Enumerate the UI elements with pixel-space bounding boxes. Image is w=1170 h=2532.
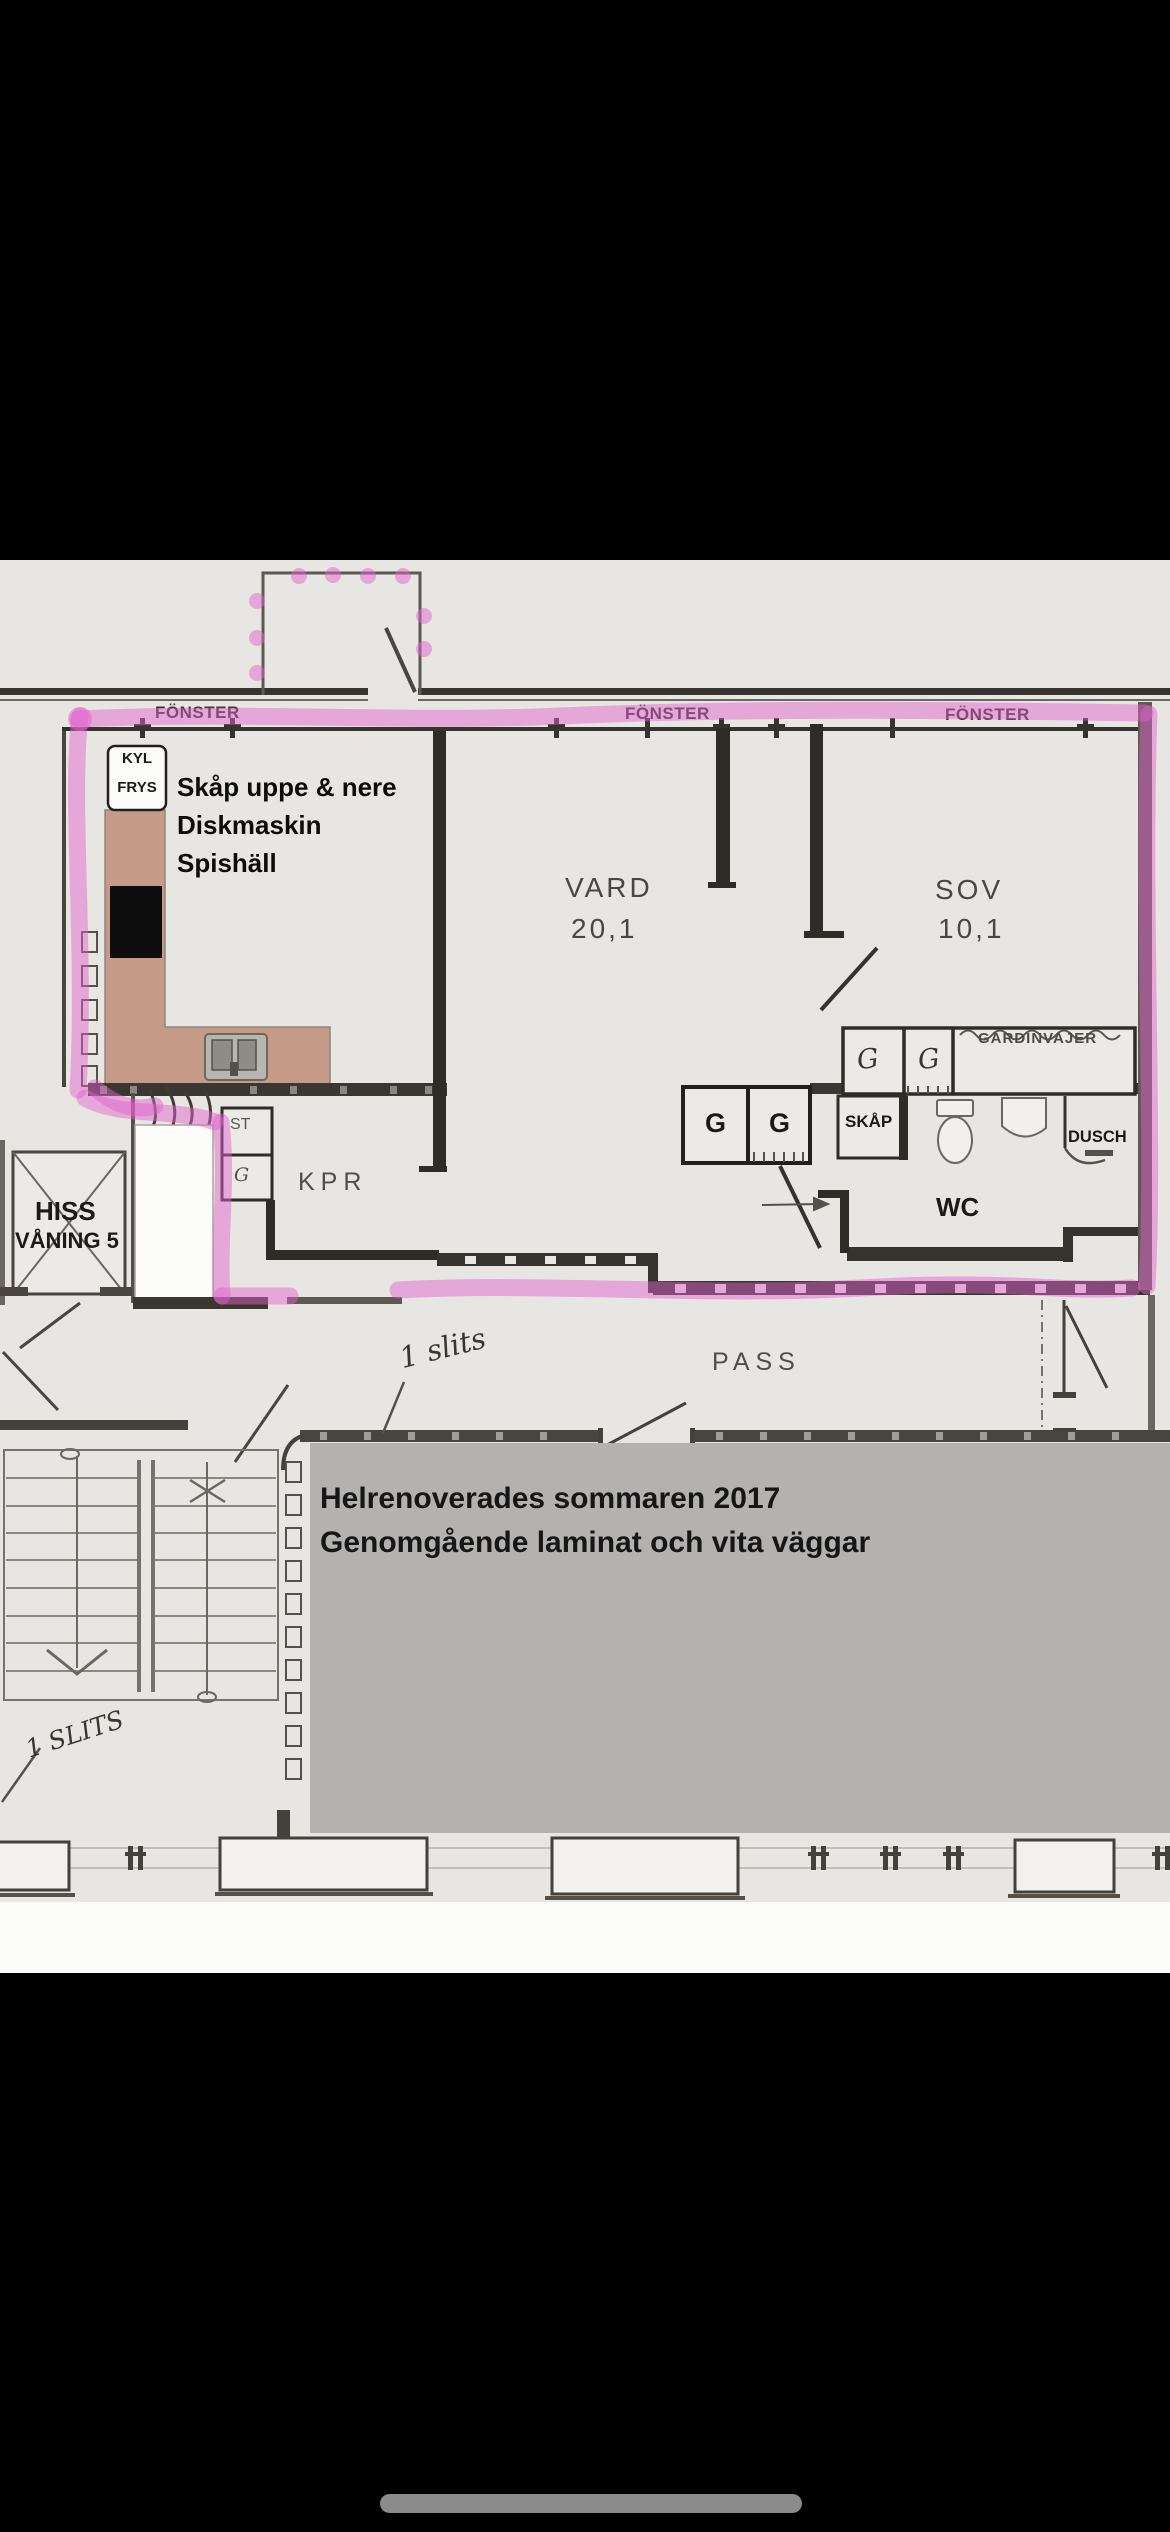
fridge-label-line1: KYL [108, 750, 166, 767]
sink-icon [205, 1034, 267, 1080]
kitchen-note-line2: Diskmaskin [177, 806, 322, 844]
bedroom-closet-g2: G [916, 1043, 941, 1076]
window-label-1: FÖNSTER [155, 703, 240, 723]
curtain-wire-label: GARDINVAJER [978, 1030, 1097, 1047]
toilet-icon [937, 1100, 973, 1163]
closet-g-label: G [234, 1164, 249, 1186]
fridge-label-line2: FRYS [108, 779, 166, 796]
kitchen-note-line3: Spishäll [177, 844, 277, 882]
paper-margin [0, 1902, 1170, 1973]
hall-wardrobe-g1: G [705, 1108, 726, 1139]
bedroom-door-leaf [821, 948, 877, 1010]
status-bar-area [0, 0, 1170, 560]
cabinet-label: SKÅP [845, 1112, 892, 1132]
closet-st-label: ST [230, 1116, 250, 1134]
window-label-2: FÖNSTER [625, 704, 710, 724]
right-wall-lower [1148, 1295, 1155, 1433]
window-label-3: FÖNSTER [945, 705, 1030, 725]
elevator-label-line2: VÅNING 5 [15, 1228, 119, 1254]
living-room-area: 20,1 [571, 913, 638, 945]
staircase [4, 1449, 278, 1702]
passage-name: PASS [712, 1348, 801, 1377]
room-divider-walls [708, 724, 877, 1010]
phone-screenshot: FÖNSTER FÖNSTER FÖNSTER KYL FRYS Skåp up… [0, 0, 1170, 2532]
elevator-label-line1: HISS [35, 1196, 96, 1227]
stove-icon [110, 886, 162, 958]
renovation-note-line1: Helrenoverades sommaren 2017 [320, 1482, 780, 1516]
shower-label: DUSCH [1068, 1128, 1127, 1147]
renovation-note-line2: Genomgående laminat och vita väggar [320, 1526, 870, 1560]
landing-door-leaf-1 [20, 1303, 80, 1348]
hall-name: KPR [298, 1168, 367, 1197]
living-room-name: VARD [565, 872, 653, 904]
left-wall [62, 731, 97, 1087]
passage-right-door [1042, 1300, 1107, 1434]
landing-door-leaf-2 [3, 1352, 58, 1410]
bedroom-closet-g1: G [855, 1043, 880, 1076]
hall-closets [222, 1108, 439, 1304]
kitchen-note-line1: Skåp uppe & nere [177, 768, 397, 806]
home-indicator[interactable] [380, 2494, 802, 2513]
bedroom-name: SOV [935, 874, 1003, 906]
balcony-outline [263, 573, 420, 695]
right-wall [1138, 702, 1152, 1290]
bottom-bar-area [0, 1973, 1170, 2532]
washbasin-icon [1002, 1098, 1046, 1137]
wc-label: WC [936, 1192, 979, 1223]
bedroom-area: 10,1 [938, 913, 1005, 945]
hall-wardrobe-g2: G [769, 1108, 790, 1139]
